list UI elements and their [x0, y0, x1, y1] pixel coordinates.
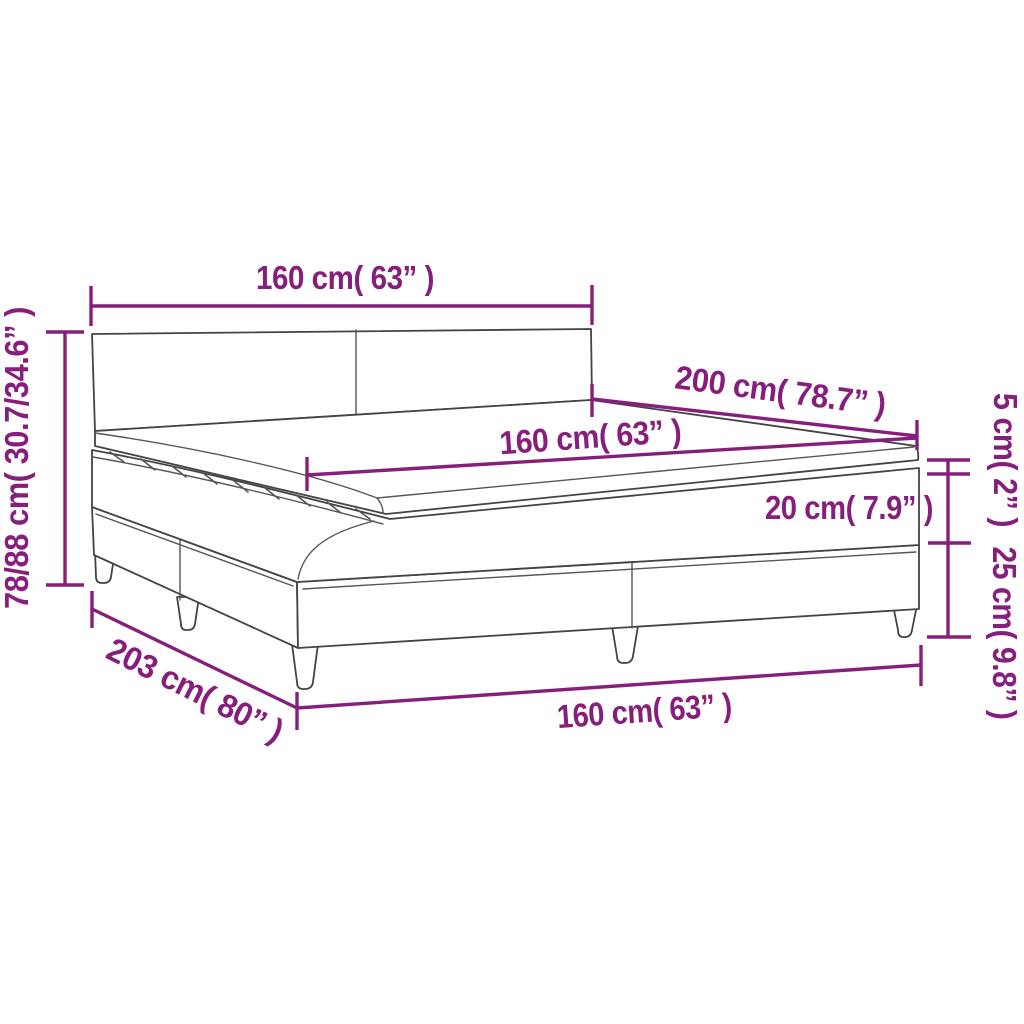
label-base-height: 25 cm( 9.8” )	[986, 547, 1023, 720]
dim-right-stack	[927, 460, 971, 637]
label-mattress-thickness: 20 cm( 7.9” )	[765, 489, 933, 526]
label-base-width: 160 cm( 63” )	[556, 686, 733, 735]
dimension-diagram: 160 cm( 63” ) 78/88 cm( 30.7/34.6” ) 200…	[0, 0, 1024, 1024]
leg-front-left	[292, 644, 318, 689]
leg-front-middle	[612, 626, 638, 663]
dim-overall-height	[46, 332, 84, 585]
label-headboard-width: 160 cm( 63” )	[256, 259, 434, 296]
label-topper-thickness: 5 cm( 2” )	[987, 393, 1024, 527]
label-overall-height: 78/88 cm( 30.7/34.6” )	[0, 307, 35, 609]
bed-dimension-drawing: 160 cm( 63” ) 78/88 cm( 30.7/34.6” ) 200…	[0, 0, 1024, 1024]
